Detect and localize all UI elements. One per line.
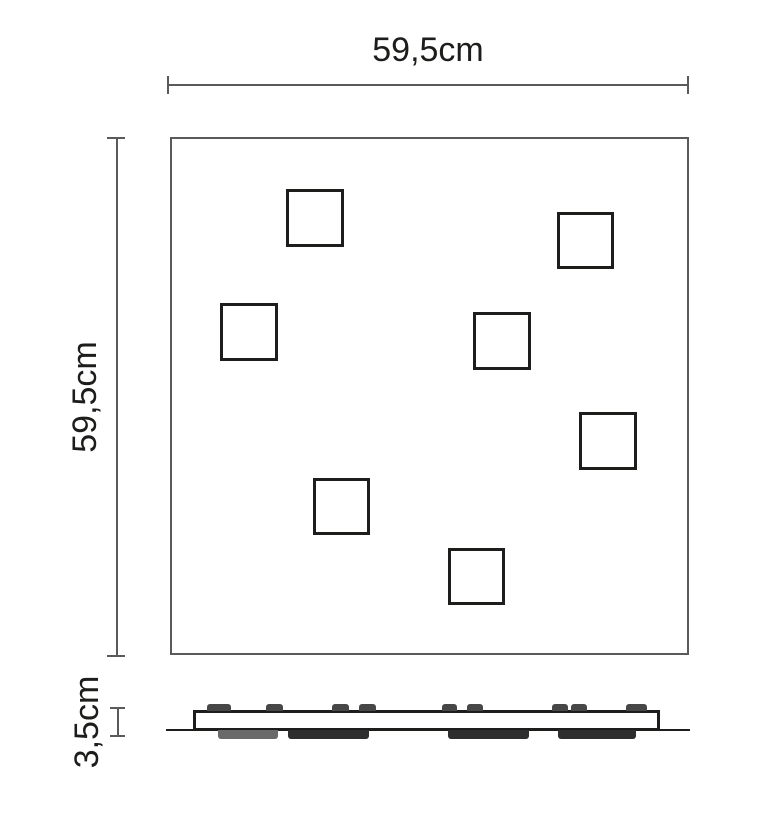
side-profile-body bbox=[193, 710, 660, 731]
width-dimension-tick-right bbox=[687, 76, 689, 94]
dimension-drawing: 59,5cm 59,5cm 3,5cm bbox=[0, 0, 767, 838]
led-cutout bbox=[557, 212, 614, 269]
mounting-clip bbox=[442, 704, 457, 711]
mounting-clip bbox=[332, 704, 349, 711]
led-module-strip bbox=[288, 730, 369, 739]
led-cutout bbox=[220, 303, 278, 361]
led-module-strip bbox=[218, 730, 278, 739]
mounting-clip bbox=[467, 704, 483, 711]
height-dimension-tick-bottom bbox=[107, 655, 125, 657]
mounting-clip bbox=[571, 704, 587, 711]
led-cutout bbox=[579, 412, 637, 470]
led-cutout bbox=[286, 189, 344, 247]
depth-dimension-tick-top bbox=[110, 707, 125, 709]
led-cutout bbox=[313, 478, 370, 535]
width-dimension-line bbox=[168, 84, 689, 86]
mounting-clip bbox=[266, 704, 283, 711]
mounting-clip bbox=[207, 704, 231, 711]
led-cutout bbox=[448, 548, 505, 605]
led-module-strip bbox=[448, 730, 529, 739]
width-dimension-tick-left bbox=[167, 76, 169, 94]
depth-dimension-label: 3,5cm bbox=[70, 676, 104, 769]
height-dimension-tick-top bbox=[107, 137, 125, 139]
depth-dimension-tick-bottom bbox=[110, 735, 125, 737]
width-dimension-label: 59,5cm bbox=[372, 33, 484, 67]
led-module-strip bbox=[558, 730, 636, 739]
depth-dimension-line bbox=[117, 708, 119, 737]
mounting-clip bbox=[359, 704, 376, 711]
mounting-clip bbox=[552, 704, 568, 711]
led-cutout bbox=[473, 312, 531, 370]
mounting-clip bbox=[626, 704, 647, 711]
height-dimension-line bbox=[116, 138, 118, 657]
height-dimension-label: 59,5cm bbox=[68, 341, 102, 453]
